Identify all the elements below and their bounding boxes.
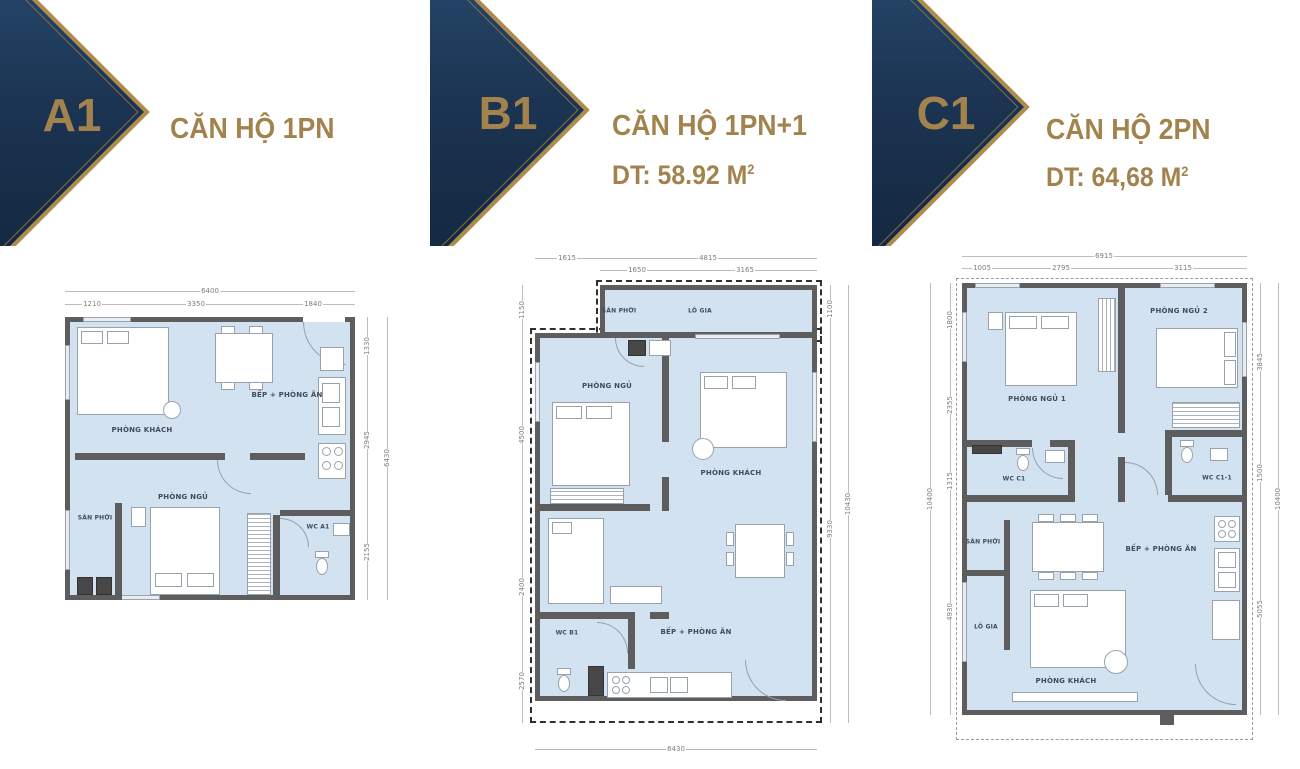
unit-title-a1: CĂN HỘ 1PN <box>170 113 335 146</box>
dim-label: 3165 <box>735 266 755 274</box>
room-label-laundry: SÂN PHƠI <box>78 515 113 522</box>
unit-area-b1: DT: 58.92 M2 <box>612 160 754 191</box>
window <box>65 345 70 400</box>
pillow <box>732 376 756 389</box>
dim-label: 6915 <box>1094 252 1114 260</box>
dining-table <box>1032 522 1104 572</box>
dim-label: 2400 <box>518 578 526 596</box>
room-label-kitchen: BẾP + PHÒNG ĂN <box>660 628 731 636</box>
toilet-icon <box>1180 440 1194 447</box>
room-label-balcony: LÔ GIA <box>688 308 712 315</box>
room-label-kitchen: BẾP + PHÒNG ĂN <box>1125 545 1196 553</box>
stove-icon <box>1214 516 1240 542</box>
dim-label: 6400 <box>200 287 220 295</box>
wall <box>650 612 669 619</box>
pillow <box>81 331 103 344</box>
unit-badge-label: A1 <box>32 88 112 142</box>
dim-label: 4500 <box>518 426 526 444</box>
side-table <box>163 401 181 419</box>
chair <box>221 326 235 334</box>
chair <box>1060 514 1076 522</box>
dim-label: 1800 <box>946 311 954 329</box>
unit-badge-label: B1 <box>468 86 548 140</box>
dim-label: 10430 <box>844 493 852 515</box>
floorplan-b1: 1615 4815 1650 3165 1150 4500 2400 2570 … <box>500 252 860 767</box>
room-label-laundry: SÂN PHƠI <box>966 539 1001 546</box>
nightstand <box>988 312 1003 330</box>
kitchen-counter <box>1212 600 1240 640</box>
area-sup: 2 <box>1181 163 1188 179</box>
wall <box>1068 440 1075 495</box>
dim-label: 10400 <box>1274 488 1282 510</box>
dim-line <box>535 258 817 259</box>
nightstand <box>131 507 146 527</box>
washer-icon <box>972 445 1002 454</box>
burner-icon <box>1228 520 1236 528</box>
unit-badge-label: C1 <box>906 86 986 140</box>
dim-label: 1210 <box>82 300 102 308</box>
dim-line <box>830 285 831 723</box>
chair <box>726 532 734 546</box>
pillow <box>1009 316 1037 329</box>
sink-icon <box>1045 450 1065 463</box>
window <box>1160 283 1215 288</box>
wall <box>628 619 635 669</box>
burner-icon <box>612 686 620 694</box>
dim-label: 1650 <box>627 266 647 274</box>
dim-label: 1005 <box>972 264 992 272</box>
pillow <box>187 573 214 587</box>
burner-icon <box>322 461 331 470</box>
chair <box>1082 514 1098 522</box>
sink-icon <box>1218 552 1236 568</box>
room-label-bedroom: PHÒNG NGỦ <box>158 493 208 501</box>
room-label-living: PHÒNG KHÁCH <box>1036 677 1097 685</box>
toilet-icon <box>316 558 328 575</box>
dim-line <box>1260 283 1261 715</box>
wall-stub <box>1160 713 1174 725</box>
dim-label: 4930 <box>946 603 954 621</box>
wardrobe <box>550 488 624 504</box>
window <box>1242 322 1247 377</box>
unit-title-c1: CĂN HỘ 2PN <box>1046 114 1211 147</box>
pillow <box>1224 360 1236 385</box>
chair <box>1038 514 1054 522</box>
toilet-icon <box>1017 455 1029 471</box>
pillow <box>556 406 582 419</box>
room-label-laundry: SÂN PHƠI <box>602 308 637 315</box>
pillow <box>1224 332 1236 357</box>
washer-icon <box>628 340 646 356</box>
page: A1 CĂN HỘ 1PN B1 CĂN HỘ 1PN+1 DT: 58.92 … <box>0 0 1300 769</box>
tv-cabinet <box>1012 692 1138 702</box>
sink-icon <box>1210 448 1228 461</box>
area-text: DT: 58.92 M <box>612 160 747 190</box>
window <box>535 362 540 422</box>
dim-label: 3115 <box>1173 264 1193 272</box>
room-label-wc1: WC C1 <box>1003 476 1026 483</box>
sink-icon <box>322 383 340 403</box>
dim-label: 1840 <box>303 300 323 308</box>
chair <box>786 532 794 546</box>
fridge <box>320 347 344 371</box>
pillow <box>107 331 129 344</box>
wall <box>75 453 225 460</box>
burner-icon <box>1218 530 1226 538</box>
window <box>962 582 967 662</box>
window <box>65 510 70 570</box>
window <box>83 317 131 322</box>
dim-label: 10400 <box>926 488 934 510</box>
side-table <box>1104 650 1128 674</box>
pillow <box>704 376 728 389</box>
toilet-icon <box>557 668 571 675</box>
dim-label: 3350 <box>186 300 206 308</box>
dim-label: 1615 <box>557 254 577 262</box>
chair <box>726 552 734 566</box>
toilet-icon <box>1016 448 1030 455</box>
desk <box>610 586 662 604</box>
area-sup: 2 <box>747 161 754 177</box>
dim-label: 2570 <box>518 672 526 690</box>
wall <box>535 612 635 619</box>
floorplan-a1: 6400 1210 3350 1840 1330 2945 2155 6430 <box>65 285 400 620</box>
dim-label: 1330 <box>363 337 371 355</box>
sink-icon <box>649 340 671 356</box>
burner-icon <box>334 461 343 470</box>
wardrobe <box>1098 298 1116 372</box>
dim-label: 2945 <box>363 431 371 449</box>
dim-label: 4815 <box>698 254 718 262</box>
chair <box>1038 572 1054 580</box>
burner-icon <box>322 447 331 456</box>
sink-icon <box>1218 572 1236 588</box>
wall <box>1168 495 1247 502</box>
unit-title-b1: CĂN HỘ 1PN+1 <box>612 110 807 143</box>
room-label-bedroom: PHÒNG NGỦ <box>582 382 632 390</box>
pillow <box>1034 594 1059 607</box>
sink-icon <box>650 677 668 693</box>
area-text: DT: 64,68 M <box>1046 162 1181 192</box>
dim-label: 9330 <box>826 520 834 538</box>
window <box>695 334 780 339</box>
burner-icon <box>1228 530 1236 538</box>
washer-icon <box>96 577 112 595</box>
unit-area-c1: DT: 64,68 M2 <box>1046 162 1188 193</box>
burner-icon <box>622 676 630 684</box>
room-label-living: PHÒNG KHÁCH <box>701 469 762 477</box>
burner-icon <box>622 686 630 694</box>
dim-line <box>950 283 951 715</box>
wall <box>1165 430 1247 437</box>
room-label-living: PHÒNG KHÁCH <box>112 426 173 434</box>
wall <box>1118 457 1125 502</box>
dim-label: 1315 <box>946 472 954 490</box>
pillow <box>1063 594 1088 607</box>
wall <box>115 503 122 600</box>
window <box>962 312 967 362</box>
dim-line <box>962 268 1247 269</box>
chair <box>249 326 263 334</box>
pillow <box>155 573 182 587</box>
chair <box>1060 572 1076 580</box>
dim-label: 1500 <box>1256 464 1264 482</box>
toilet-icon <box>1181 447 1193 463</box>
sink-icon <box>670 677 688 693</box>
wall <box>535 504 650 511</box>
dim-label: 2155 <box>363 543 371 561</box>
wall <box>962 570 1010 576</box>
side-table <box>692 438 714 460</box>
dim-label: 5055 <box>1256 600 1264 618</box>
room-label-wc2: WC C1-1 <box>1202 475 1232 482</box>
wall <box>273 515 280 600</box>
wardrobe <box>1172 402 1240 428</box>
room-label-wc: WC A1 <box>307 524 330 531</box>
window <box>975 283 1020 288</box>
dim-label: 2795 <box>1051 264 1071 272</box>
wall <box>280 510 355 516</box>
toilet-icon <box>315 551 329 558</box>
room-label-kitchen: BẾP + PHÒNG ĂN <box>251 391 322 399</box>
room-label-bedroom1: PHÒNG NGỦ 1 <box>1008 395 1066 403</box>
chair <box>1082 572 1098 580</box>
toilet-icon <box>558 675 570 692</box>
wall <box>250 453 305 460</box>
wall <box>1118 283 1125 433</box>
burner-icon <box>334 447 343 456</box>
pillow <box>586 406 612 419</box>
chair <box>249 382 263 390</box>
dining-table <box>215 333 273 383</box>
floorplan-c1: 6915 1005 2795 3115 1800 2355 1315 4930 … <box>920 252 1300 764</box>
wall <box>662 477 669 511</box>
sink-icon <box>322 407 340 427</box>
room-label-balcony: LÔ GIA <box>974 624 998 631</box>
dim-line <box>522 285 523 723</box>
window <box>120 595 160 600</box>
dim-label: 3845 <box>1256 353 1264 371</box>
washer-icon <box>77 577 93 595</box>
room-label-bedroom2: PHÒNG NGỦ 2 <box>1150 307 1208 315</box>
dim-label: 1100 <box>826 300 834 318</box>
dim-label: 6430 <box>383 449 391 467</box>
dining-table <box>735 524 785 578</box>
wall <box>1004 520 1010 650</box>
pillow <box>552 522 572 534</box>
dim-label: 6430 <box>666 745 686 753</box>
burner-icon <box>1218 520 1226 528</box>
dim-label: 2355 <box>946 396 954 414</box>
wall <box>962 495 1075 502</box>
pillow <box>1041 316 1069 329</box>
burner-icon <box>612 676 620 684</box>
dim-label: 1150 <box>518 301 526 319</box>
chair <box>786 552 794 566</box>
room-label-wc: WC B1 <box>556 630 579 637</box>
sink-icon <box>333 523 350 536</box>
shower-icon <box>588 666 604 696</box>
wall <box>1165 437 1172 495</box>
window <box>812 372 817 442</box>
chair <box>221 382 235 390</box>
wardrobe <box>247 513 271 595</box>
